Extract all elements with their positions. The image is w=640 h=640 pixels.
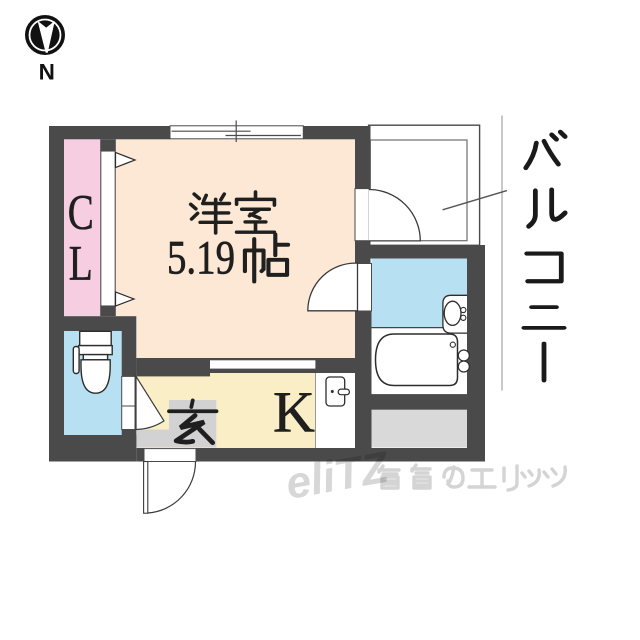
svg-text:5.19: 5.19 <box>167 232 235 285</box>
svg-text:N: N <box>39 60 55 85</box>
svg-text:K: K <box>273 379 315 444</box>
svg-text:L: L <box>69 234 93 290</box>
svg-text:C: C <box>68 184 94 240</box>
